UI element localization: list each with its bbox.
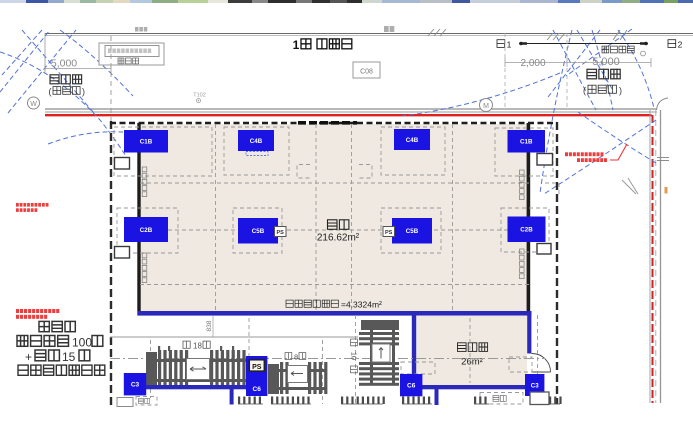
svg-text:PS: PS: [252, 364, 262, 371]
svg-text:216.62m²: 216.62m²: [317, 233, 360, 244]
svg-text:8: 8: [294, 353, 298, 362]
svg-text:(: (: [583, 86, 586, 96]
svg-text:C5B: C5B: [252, 228, 265, 235]
svg-text:C1B: C1B: [140, 139, 153, 146]
svg-text:T102: T102: [193, 93, 206, 99]
svg-text:PS: PS: [277, 230, 285, 236]
svg-text:838: 838: [206, 320, 213, 331]
svg-text:C4B: C4B: [250, 138, 263, 145]
svg-text:C6: C6: [253, 386, 262, 393]
svg-text:2,000: 2,000: [520, 58, 545, 69]
svg-text:C1B: C1B: [520, 139, 533, 146]
svg-text:15: 15: [62, 350, 76, 364]
svg-text:M: M: [483, 103, 489, 110]
svg-text:10: 10: [350, 352, 359, 360]
svg-text:=4.3324m²: =4.3324m²: [341, 300, 382, 310]
svg-text:5,000: 5,000: [592, 56, 620, 68]
svg-text:W: W: [30, 101, 37, 108]
svg-text:2: 2: [678, 40, 683, 50]
svg-text:C3: C3: [131, 382, 140, 389]
svg-text:100: 100: [72, 336, 92, 350]
svg-text:5,000: 5,000: [51, 58, 77, 70]
svg-text:C2B: C2B: [520, 227, 533, 234]
svg-text:PS: PS: [385, 230, 393, 236]
svg-text:): ): [619, 86, 622, 96]
svg-text:C6: C6: [407, 383, 416, 390]
svg-text:C08: C08: [360, 69, 373, 76]
svg-text:18: 18: [193, 342, 202, 351]
svg-text:C4B: C4B: [406, 137, 419, 144]
svg-text:1: 1: [507, 40, 512, 50]
svg-text:): ): [82, 87, 85, 97]
svg-text:+: +: [25, 350, 32, 364]
svg-text:1: 1: [293, 38, 300, 52]
svg-text:C3: C3: [531, 382, 539, 389]
svg-text:C5B: C5B: [406, 228, 419, 235]
svg-text:C2B: C2B: [140, 227, 153, 234]
svg-text:(: (: [49, 87, 52, 97]
